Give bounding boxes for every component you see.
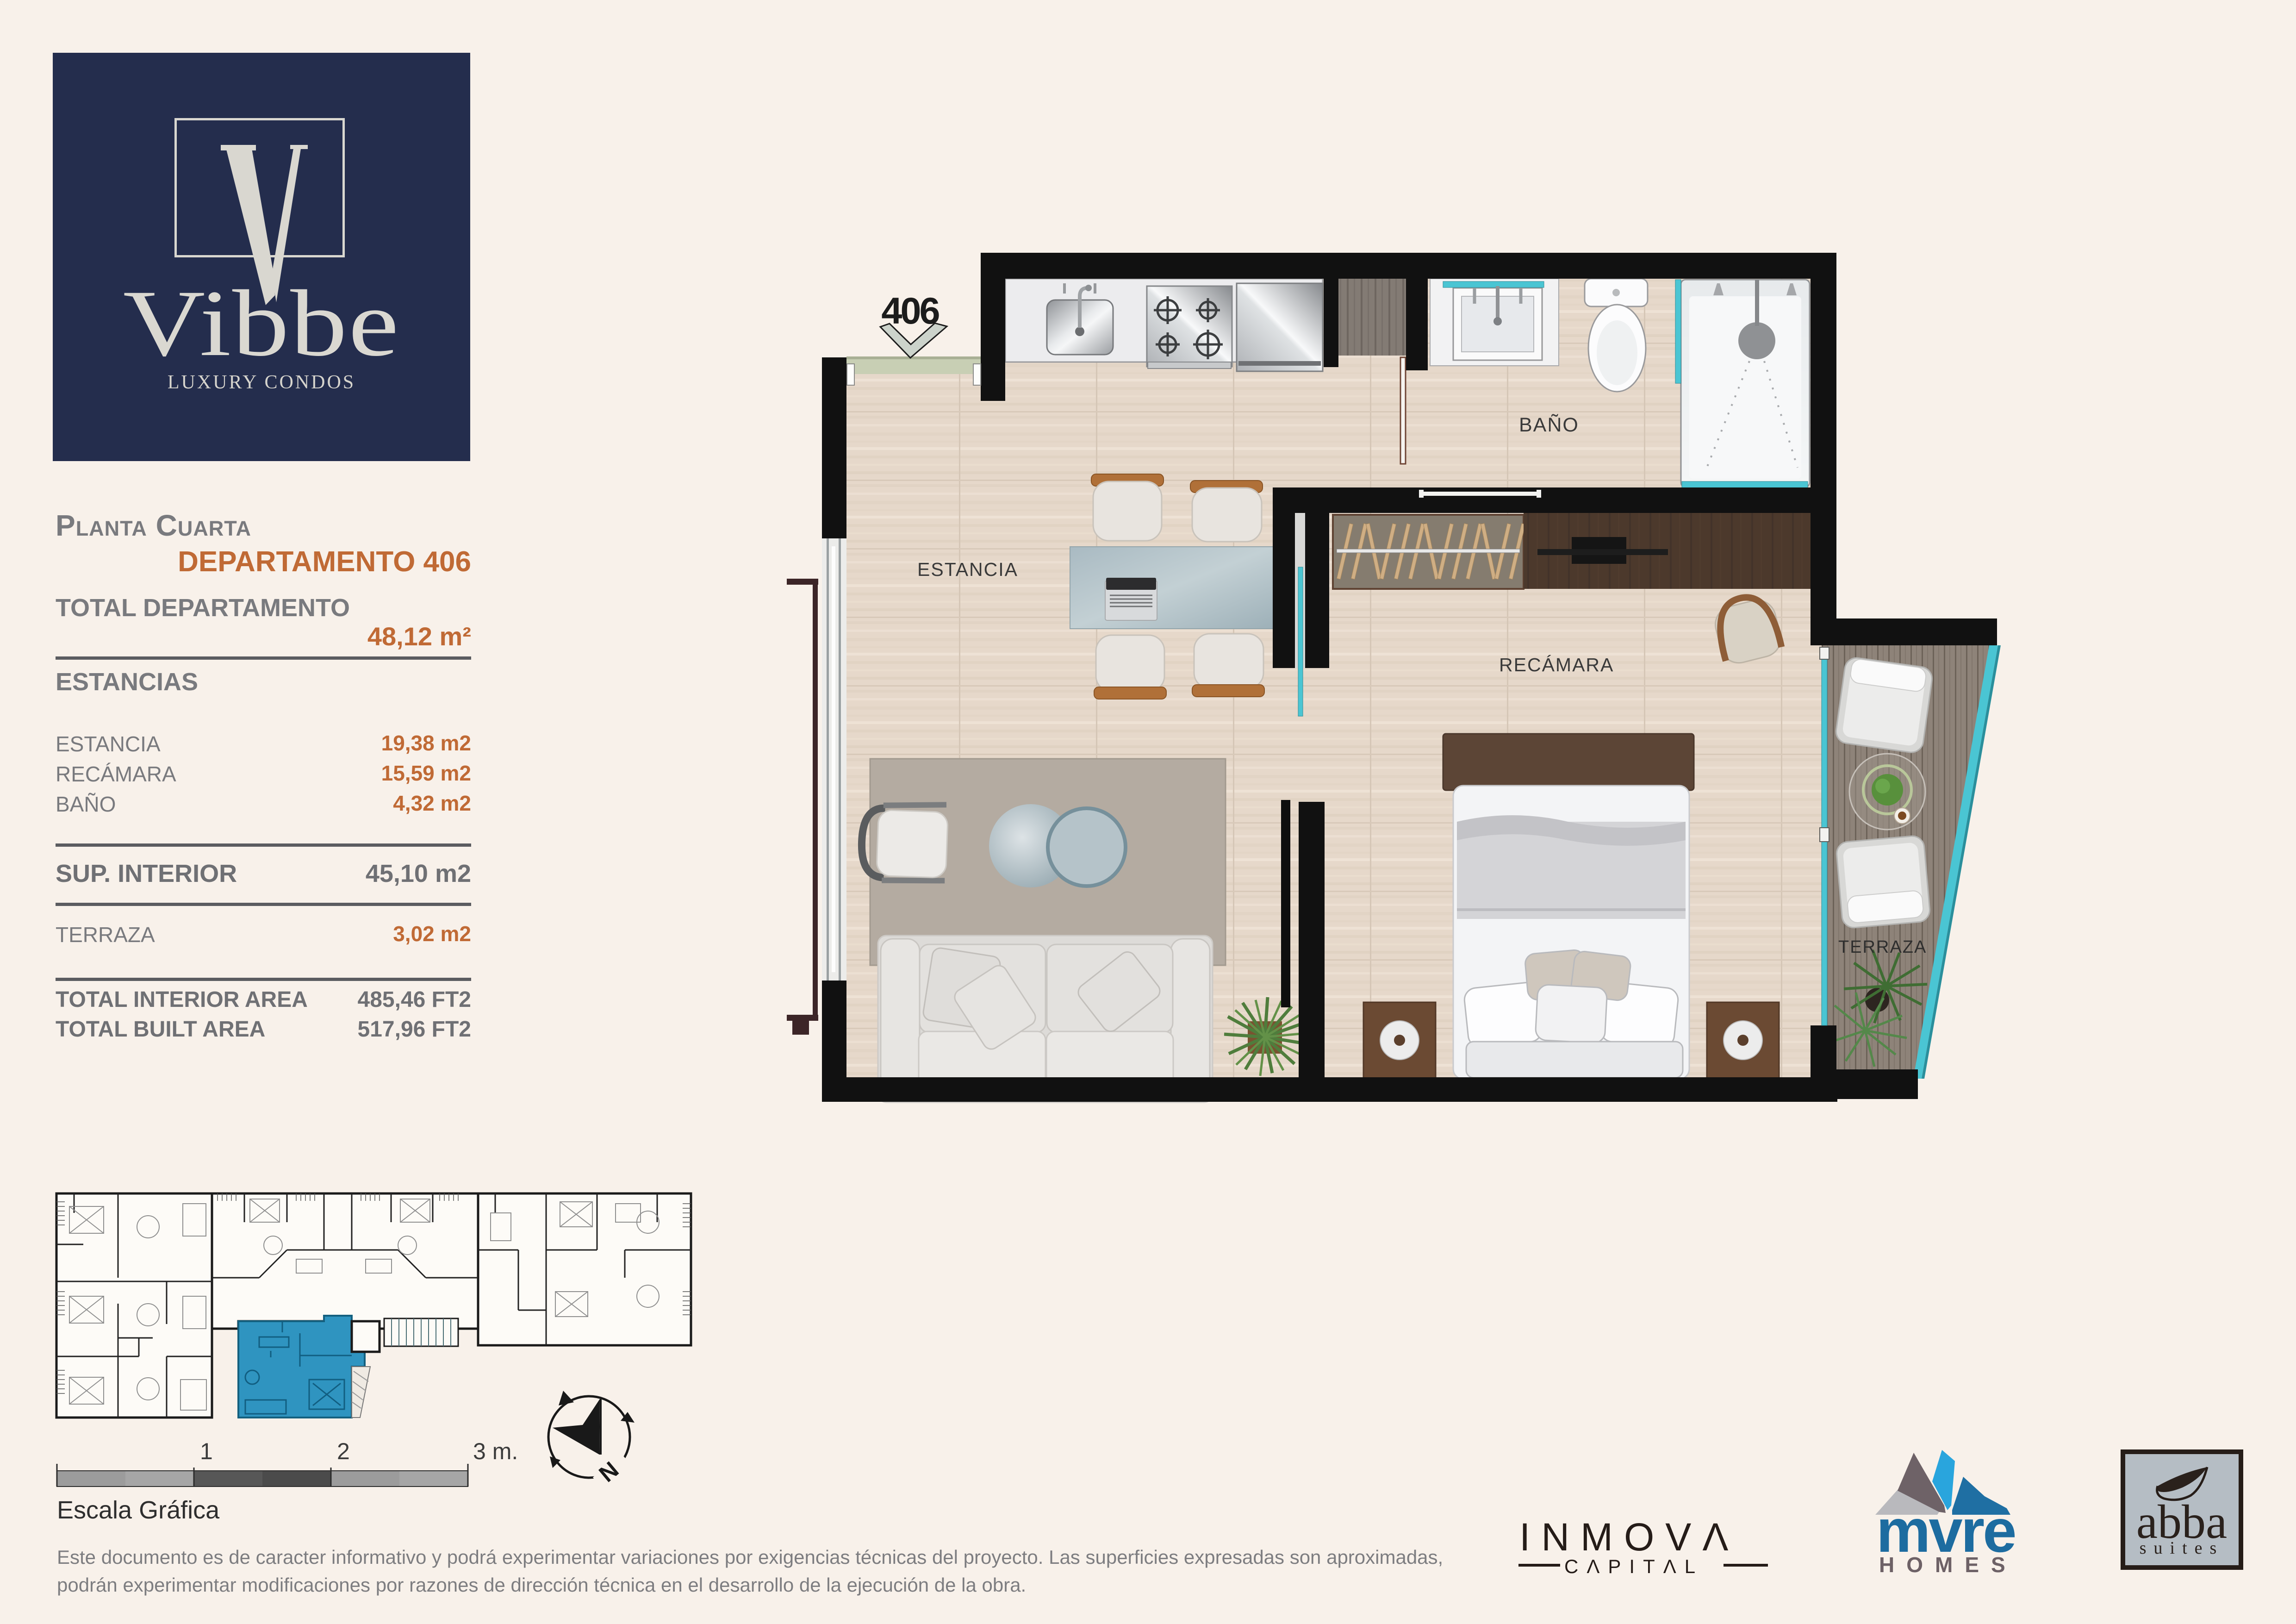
svg-text:3 m.: 3 m.: [473, 1438, 518, 1464]
svg-text:HOMES: HOMES: [1879, 1553, 2017, 1577]
svg-text:TERRAZA: TERRAZA: [1838, 937, 1927, 957]
svg-text:CΛPITΛL: CΛPITΛL: [1564, 1555, 1704, 1577]
svg-text:1: 1: [200, 1438, 213, 1464]
svg-text:Escala Gráfica: Escala Gráfica: [57, 1496, 220, 1524]
svg-text:BAÑO: BAÑO: [1519, 414, 1579, 436]
svg-text:2: 2: [337, 1438, 350, 1464]
svg-text:suites: suites: [2140, 1538, 2224, 1558]
svg-text:INMOVΛ: INMOVΛ: [1519, 1515, 1739, 1559]
svg-text:RECÁMARA: RECÁMARA: [1499, 654, 1614, 675]
svg-text:ESTANCIA: ESTANCIA: [917, 559, 1018, 580]
